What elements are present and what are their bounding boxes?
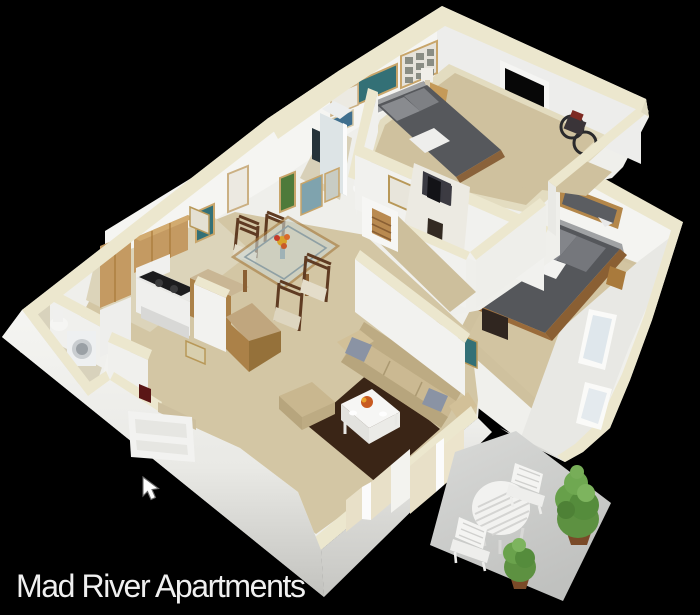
svg-text:Mad River Apartments: Mad River Apartments — [16, 568, 305, 604]
